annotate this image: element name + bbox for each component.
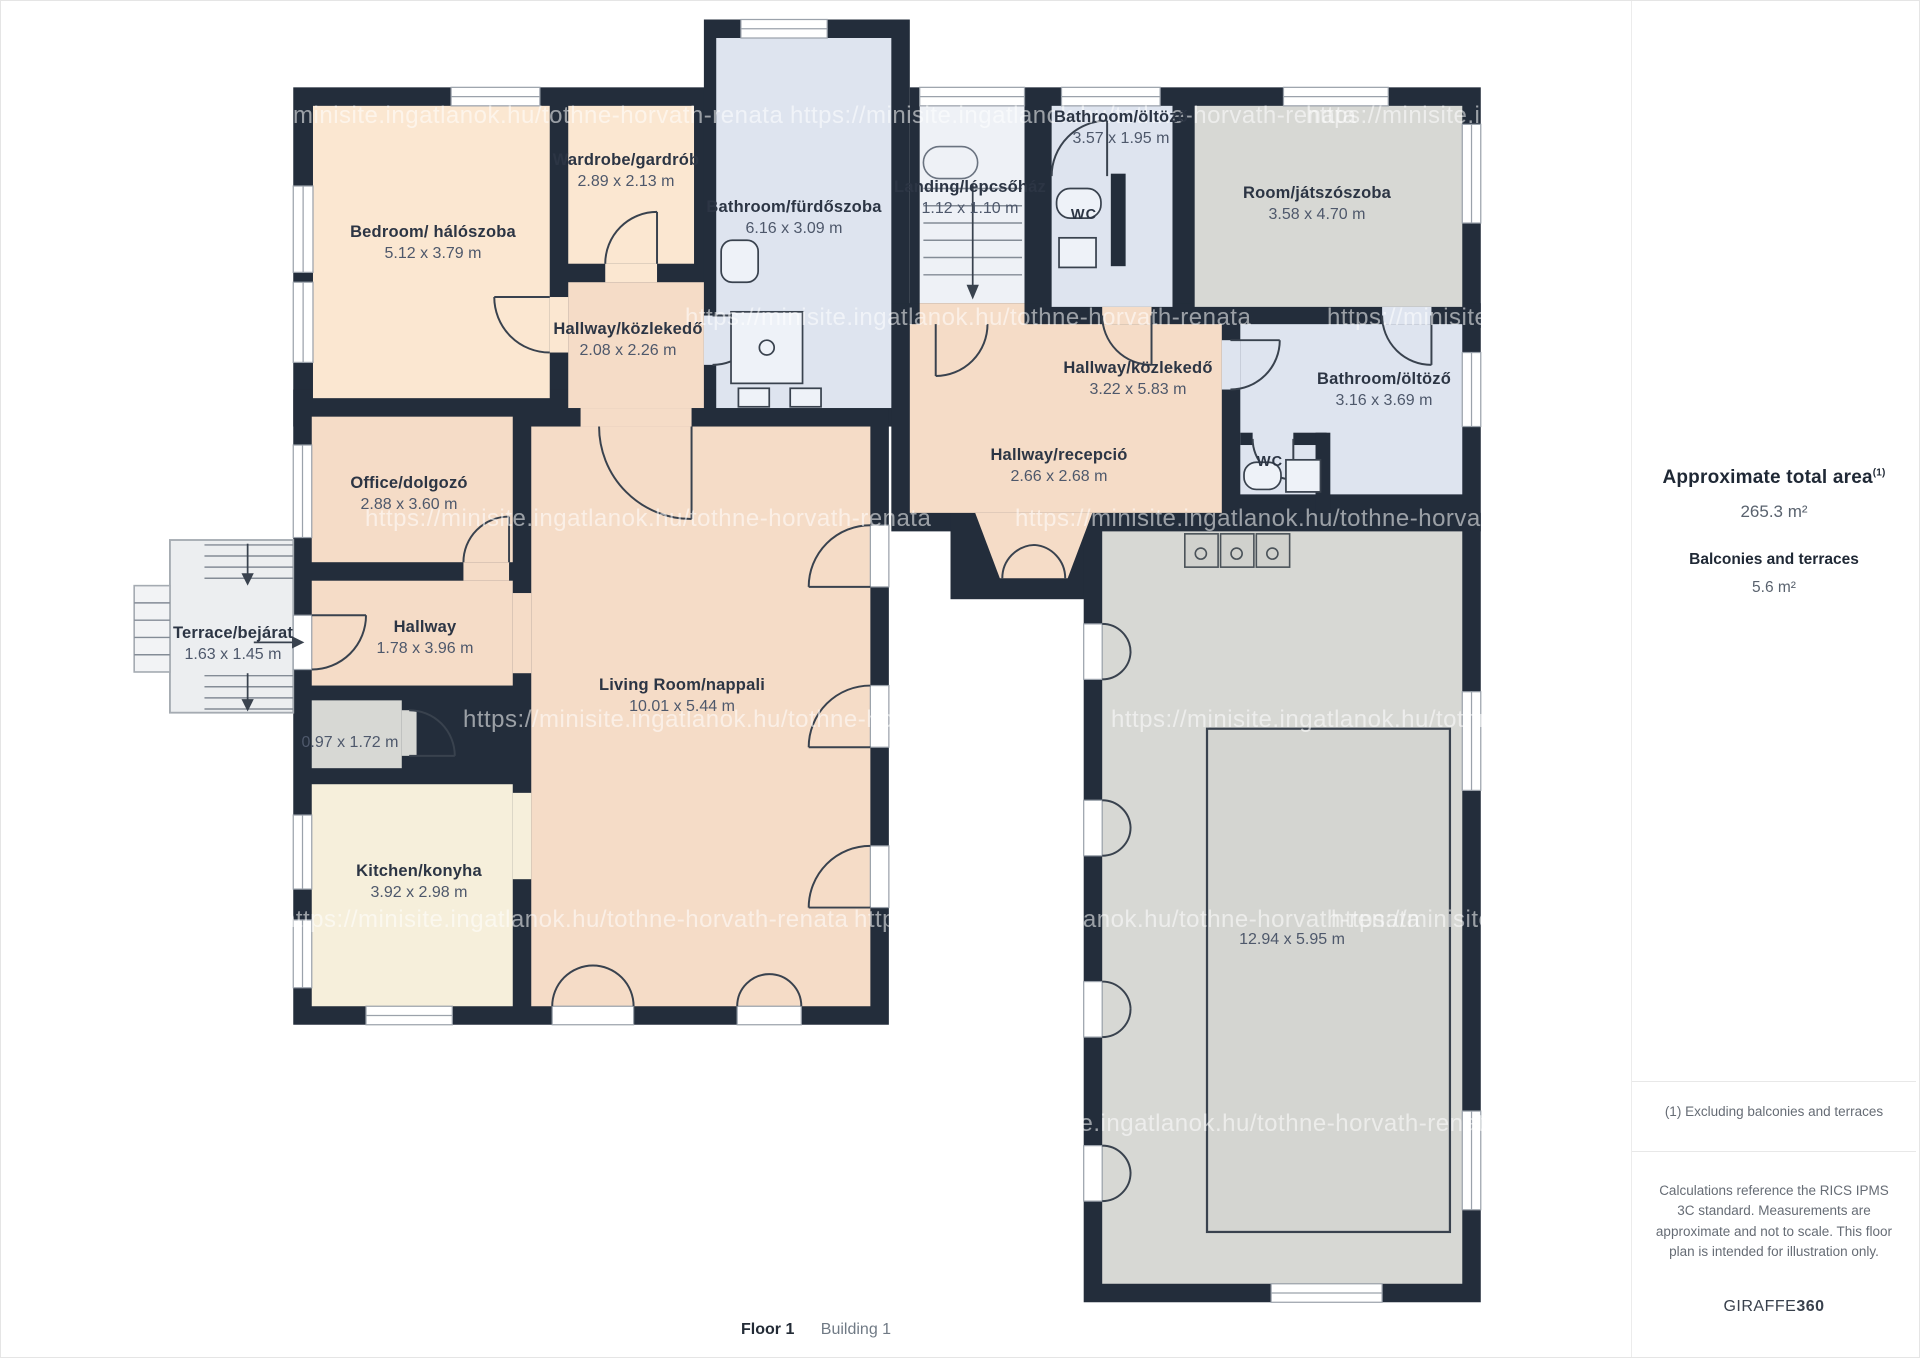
floor-title: Floor 1 Building 1: [741, 1321, 891, 1339]
brand-logo: GIRAFFE360: [1632, 1298, 1916, 1316]
total-area-text: Approximate total area: [1662, 467, 1872, 488]
terrace-structure: [134, 540, 293, 713]
sidebar: Approximate total area(1) 265.3 m² Balco…: [1631, 1, 1916, 1357]
building-label: Building 1: [821, 1321, 891, 1338]
total-area-value: 265.3 m²: [1632, 502, 1916, 522]
total-area-footnote-marker: (1): [1873, 468, 1886, 479]
balconies-label: Balconies and terraces: [1632, 551, 1916, 569]
brand-name: GIRAFFE: [1723, 1298, 1796, 1315]
total-area-label: Approximate total area(1): [1632, 467, 1916, 489]
disclaimer: Calculations reference the RICS IPMS 3C …: [1654, 1181, 1894, 1262]
footnote: (1) Excluding balconies and terraces: [1632, 1104, 1916, 1119]
divider: [1632, 1151, 1916, 1152]
brand-suffix: 360: [1796, 1298, 1824, 1315]
floor-plan-page: https://minisite.ingatlanok.hu/tothne-ho…: [0, 0, 1920, 1358]
divider: [1632, 1081, 1916, 1082]
floor-label: Floor 1: [741, 1321, 794, 1338]
balconies-value: 5.6 m²: [1632, 579, 1916, 597]
